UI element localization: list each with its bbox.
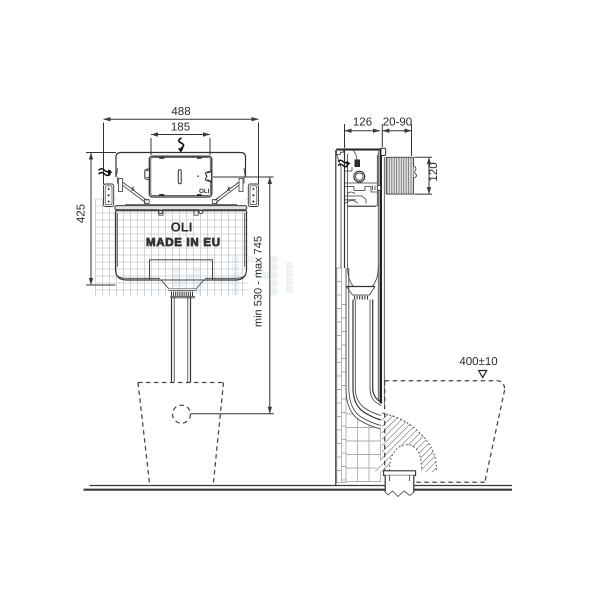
svg-text:185: 185 xyxy=(171,122,190,134)
svg-text:MADE IN EU: MADE IN EU xyxy=(146,237,220,249)
svg-text:OLI: OLI xyxy=(199,188,210,195)
svg-text:20-90: 20-90 xyxy=(383,117,412,129)
svg-text:400±10: 400±10 xyxy=(459,356,497,368)
svg-text:425: 425 xyxy=(76,204,88,223)
svg-text:126: 126 xyxy=(353,117,372,129)
svg-text:OLI: OLI xyxy=(171,220,193,235)
svg-text:120: 120 xyxy=(428,162,440,181)
svg-text:min 530 - max 745: min 530 - max 745 xyxy=(253,236,265,327)
svg-text:488: 488 xyxy=(171,106,190,118)
